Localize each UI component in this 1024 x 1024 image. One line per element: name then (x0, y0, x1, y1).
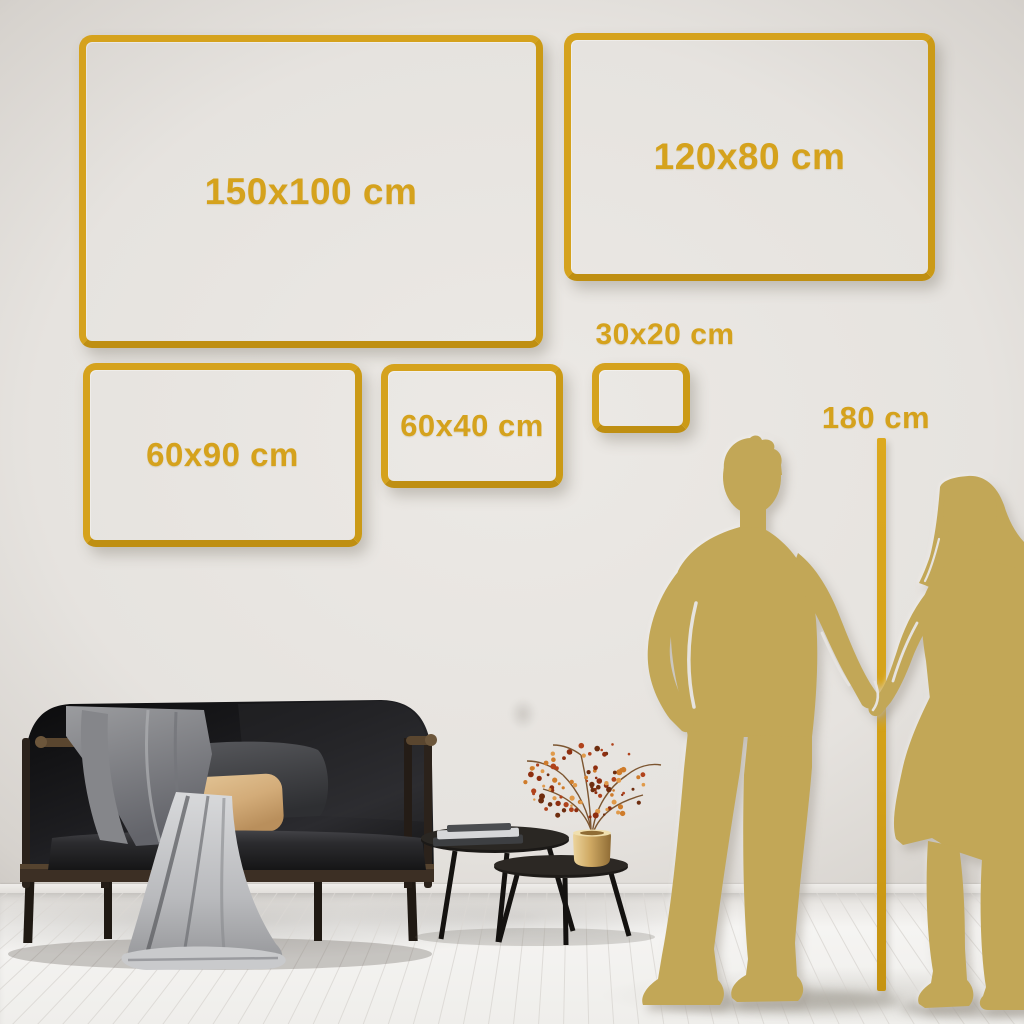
couple-silhouette (640, 435, 1024, 1015)
woman-skirt (894, 693, 1024, 870)
size-frame-60x90: 60x90 cm (83, 363, 362, 547)
size-frame-60x40: 60x40 cm (381, 364, 563, 488)
man-left-leg (642, 731, 744, 1005)
man-right-leg (731, 735, 812, 1002)
man-silhouette (642, 436, 878, 1005)
tables-floor-shadow (415, 928, 655, 946)
wall-smudge-shadow (505, 693, 541, 735)
size-label-150x100: 150x100 cm (205, 171, 418, 213)
size-label-120x80: 120x80 cm (654, 136, 846, 178)
woman-silhouette (868, 476, 1024, 1010)
wall-art-size-guide-scene: 150x100 cm 120x80 cm 60x90 cm 60x40 cm 3… (0, 0, 1024, 1024)
woman-torso (922, 559, 1024, 703)
size-label-60x40: 60x40 cm (400, 408, 544, 444)
woman-right-leg (980, 859, 1024, 1010)
height-marker-label: 180 cm (806, 400, 946, 436)
size-frame-30x20 (592, 363, 690, 433)
size-frame-150x100: 150x100 cm (79, 35, 543, 348)
brass-vase (573, 830, 611, 868)
size-label-60x90: 60x90 cm (146, 436, 299, 474)
size-label-30x20: 30x20 cm (580, 318, 750, 352)
large-coffee-table (421, 823, 573, 942)
books-stack (433, 823, 523, 847)
sofa-illustration (8, 692, 458, 982)
man-head (723, 440, 781, 514)
woman-left-leg (918, 841, 973, 1008)
size-frame-120x80: 120x80 cm (564, 33, 935, 281)
woman-head (943, 477, 997, 545)
